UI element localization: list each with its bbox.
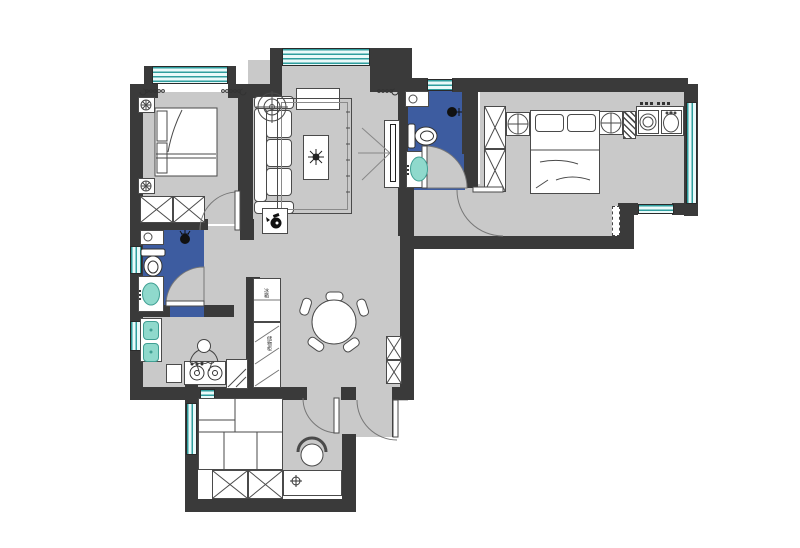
kettle-table: [262, 208, 288, 234]
stool: [166, 364, 182, 383]
wall-step-1: [270, 48, 282, 98]
wall-hall-left: [398, 188, 414, 236]
wardrobe-section: [212, 470, 248, 499]
wall-dining-right: [400, 236, 414, 398]
corner-counter: [226, 359, 248, 389]
wall-cabinet-section: [386, 360, 402, 384]
sink-basin: [143, 321, 159, 340]
floor-plan: 冰箱 储物柜: [0, 0, 800, 548]
bath-cabinet: [140, 230, 164, 245]
wall-bath-kitchen-2: [204, 305, 234, 317]
bath-cabinet: [405, 91, 429, 107]
washing-machine: [638, 110, 659, 134]
wall-study-bottom: [185, 499, 356, 512]
wall-top-3: [410, 78, 428, 92]
fridge-label: 冰箱: [263, 288, 268, 298]
wall-wincap-2: [228, 66, 236, 84]
wardrobe-section: [484, 106, 506, 149]
washbasin-unit: [138, 276, 164, 312]
wall-master-bottom: [406, 236, 620, 249]
wall-br-3: [618, 203, 634, 249]
tall-cabinet: [253, 322, 281, 388]
tatami-bed: [198, 398, 283, 470]
pillow: [567, 114, 596, 132]
wall-vestibule-thin: [392, 397, 397, 437]
floor-hall-master: [404, 184, 482, 237]
tv-screen: [390, 124, 396, 182]
wall-top-1: [130, 84, 158, 98]
fridge: [253, 278, 281, 322]
wardrobe-section: [173, 196, 205, 223]
washbasin-unit: [406, 151, 434, 188]
wardrobe-section: [140, 196, 173, 223]
sink-basin: [143, 343, 159, 362]
wall-br-1: [672, 203, 686, 215]
nightstand: [138, 178, 155, 194]
wall-post-doors: [341, 387, 356, 400]
wall-cabinet-section: [386, 336, 402, 360]
wall-bedroom-right: [238, 84, 253, 230]
laundry-sink-unit: [661, 110, 682, 134]
window-bottom-right: [638, 204, 674, 214]
coffee-table: [303, 135, 329, 180]
window-ensuite: [427, 79, 453, 91]
desk: [283, 470, 342, 496]
gas-hob: [184, 361, 226, 385]
window-study-left: [186, 403, 197, 455]
floor-study-entry: [283, 396, 343, 472]
wall-wincap-1: [144, 66, 152, 84]
tall-cabinet-label: 储物柜: [266, 336, 271, 351]
threshold: [612, 206, 620, 236]
window-right-side: [686, 102, 697, 204]
round-nightstand: [599, 111, 623, 135]
wall-master-left: [464, 84, 478, 188]
window-bedroom-top: [152, 66, 228, 84]
nightstand: [138, 97, 155, 113]
window-left-1: [130, 246, 142, 274]
window-living-top: [282, 48, 370, 66]
floor-vestibule: [340, 395, 398, 437]
wardrobe-section: [248, 470, 283, 499]
hatched-column: [623, 111, 636, 139]
wardrobe-section: [484, 149, 506, 192]
round-nightstand: [506, 112, 530, 136]
wall-top-4: [452, 78, 688, 92]
pillow: [535, 114, 564, 132]
